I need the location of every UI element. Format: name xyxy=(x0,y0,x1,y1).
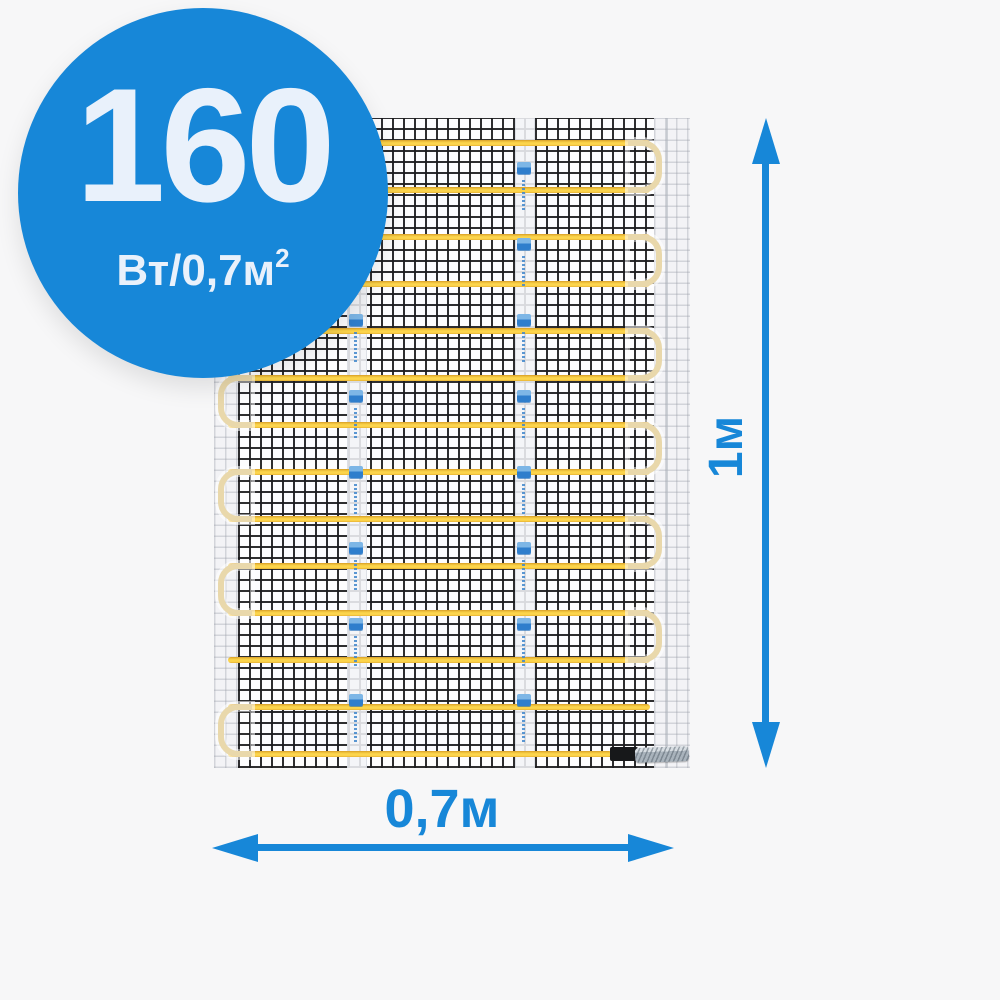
cable-u-turn-right xyxy=(628,516,662,569)
tape-micro-text xyxy=(522,712,525,742)
cable-u-turn-left xyxy=(218,704,252,757)
cable-end-cap xyxy=(610,747,638,761)
tape-micro-text xyxy=(354,332,357,362)
brand-stamp-icon xyxy=(517,542,531,554)
brand-stamp-icon xyxy=(517,162,531,174)
heating-cable-run xyxy=(228,469,650,475)
power-value: 160 xyxy=(75,65,330,227)
tape-micro-text xyxy=(354,712,357,742)
power-unit-superscript: 2 xyxy=(275,243,289,273)
tape-micro-text xyxy=(354,408,357,438)
brand-stamp-icon xyxy=(517,694,531,706)
brand-stamp-icon xyxy=(349,466,363,478)
cable-u-turn-right xyxy=(628,610,662,663)
brand-stamp-icon xyxy=(517,466,531,478)
power-unit: Вт/0,7м2 xyxy=(116,243,289,296)
height-dimension-label: 1м xyxy=(697,367,757,527)
brand-stamp-icon xyxy=(517,618,531,630)
brand-stamp-icon xyxy=(349,314,363,326)
heating-cable-run xyxy=(228,610,650,616)
cable-u-turn-right xyxy=(628,422,662,475)
tape-micro-text xyxy=(354,484,357,514)
tape-micro-text xyxy=(522,484,525,514)
cable-u-turn-left xyxy=(218,469,252,522)
width-dimension-arrow xyxy=(212,834,674,862)
heating-cable-run xyxy=(228,563,650,569)
heating-cable-run xyxy=(228,375,650,381)
brand-stamp-icon xyxy=(517,314,531,326)
heating-cable-run xyxy=(228,422,650,428)
cable-crimp-sleeve-icon xyxy=(635,746,689,763)
tape-micro-text xyxy=(522,560,525,590)
heating-cable-run xyxy=(228,657,650,663)
brand-stamp-icon xyxy=(349,542,363,554)
brand-stamp-icon xyxy=(517,390,531,402)
brand-stamp-icon xyxy=(349,390,363,402)
tape-micro-text xyxy=(522,332,525,362)
product-image: 160 Вт/0,7м2 1м 0,7м xyxy=(0,0,1000,1000)
fixing-tape-strip xyxy=(515,118,535,768)
brand-stamp-icon xyxy=(349,694,363,706)
mat-right-edge xyxy=(666,118,668,768)
heating-cable-run xyxy=(228,751,612,757)
tape-micro-text xyxy=(522,408,525,438)
brand-stamp-icon xyxy=(517,238,531,250)
arrow-right-icon xyxy=(628,834,674,862)
arrow-shaft xyxy=(762,156,769,730)
heating-cable-run xyxy=(228,516,650,522)
cable-u-turn-left xyxy=(218,563,252,616)
power-badge: 160 Вт/0,7м2 xyxy=(18,8,388,378)
cable-u-turn-right xyxy=(628,140,662,193)
tape-micro-text xyxy=(354,636,357,666)
arrow-down-icon xyxy=(752,722,780,768)
heating-cable-run xyxy=(228,704,650,710)
cable-u-turn-left xyxy=(218,375,252,428)
tape-micro-text xyxy=(354,560,357,590)
cable-u-turn-right xyxy=(628,328,662,381)
arrow-shaft xyxy=(248,844,638,851)
cable-u-turn-right xyxy=(628,234,662,287)
width-dimension-label: 0,7м xyxy=(242,780,642,838)
tape-micro-text xyxy=(522,180,525,210)
tape-micro-text xyxy=(522,256,525,286)
tape-micro-text xyxy=(522,636,525,666)
brand-stamp-icon xyxy=(349,618,363,630)
